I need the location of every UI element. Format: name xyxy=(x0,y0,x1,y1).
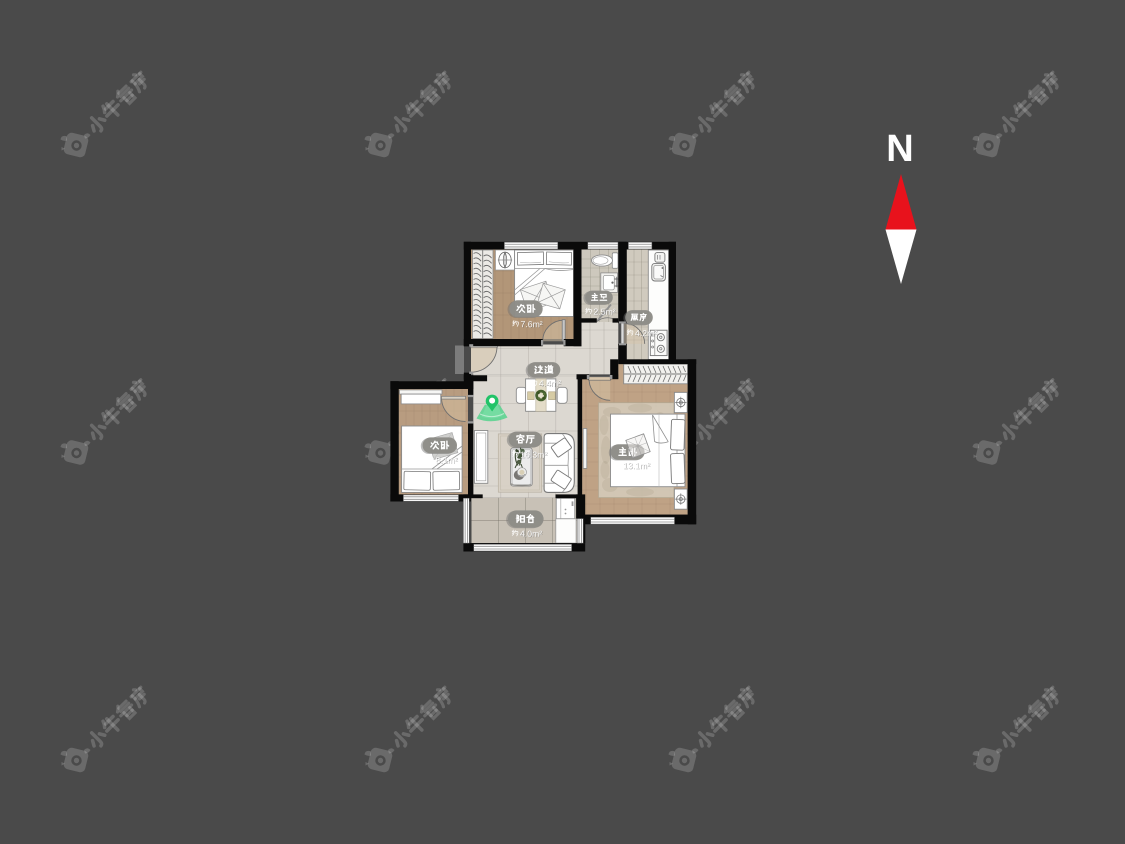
svg-text:4.2m²: 4.2m² xyxy=(635,328,657,338)
svg-text:13.1m²: 13.1m² xyxy=(623,461,650,471)
svg-text:8.1m²: 8.1m² xyxy=(435,455,457,465)
svg-text:4.0m²: 4.0m² xyxy=(520,529,542,539)
svg-text:2.5m²: 2.5m² xyxy=(593,307,615,317)
svg-text:4.4m²: 4.4m² xyxy=(539,378,561,388)
svg-text:16.3m²: 16.3m² xyxy=(520,450,547,460)
svg-text:7.6m²: 7.6m² xyxy=(520,319,542,329)
svg-text:N: N xyxy=(886,128,913,170)
